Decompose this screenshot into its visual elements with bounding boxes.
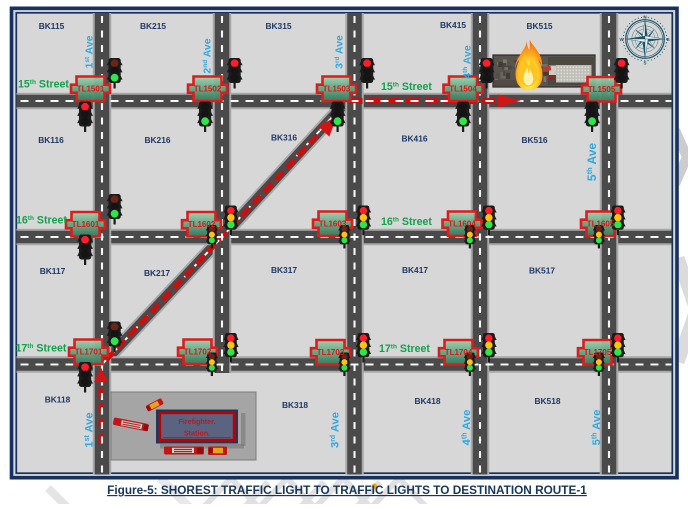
svg-text:TL1601: TL1601	[72, 220, 100, 229]
svg-text:BK117: BK117	[40, 266, 66, 276]
svg-text:TL1704: TL1704	[445, 348, 473, 357]
svg-text:4th Ave: 4th Ave	[461, 410, 473, 446]
svg-text:5th Ave: 5th Ave	[591, 410, 603, 446]
svg-text:BK116: BK116	[38, 135, 64, 145]
svg-text:BK517: BK517	[529, 266, 555, 276]
svg-text:TL1702: TL1702	[184, 347, 212, 356]
svg-text:TL1504: TL1504	[449, 84, 477, 93]
svg-text:BK318: BK318	[282, 400, 308, 410]
svg-text:BK317: BK317	[271, 265, 297, 275]
svg-text:5th Ave: 5th Ave	[585, 143, 599, 182]
svg-text:Figure-5: SHOREST TRAFFIC LIGH: Figure-5: SHOREST TRAFFIC LIGHT TO TRAFF…	[107, 483, 587, 497]
svg-text:TL1705: TL1705	[584, 348, 612, 357]
svg-text:Station.: Station.	[184, 429, 210, 438]
svg-text:15th Street: 15th Street	[18, 79, 69, 91]
svg-text:TL1703: TL1703	[317, 348, 345, 357]
svg-text:BK316: BK316	[271, 133, 297, 143]
svg-text:BK518: BK518	[534, 396, 560, 406]
svg-text:1st Ave: 1st Ave	[84, 412, 96, 447]
svg-text:17th Street: 17th Street	[379, 343, 430, 355]
svg-text:E: E	[667, 37, 670, 42]
svg-text:BK115: BK115	[39, 21, 65, 31]
svg-text:BK416: BK416	[401, 134, 427, 144]
svg-text:BK118: BK118	[45, 395, 71, 405]
svg-text:TL1605: TL1605	[587, 219, 615, 228]
svg-text:S: S	[643, 61, 646, 66]
svg-text:BK217: BK217	[144, 268, 170, 278]
svg-text:TL1503: TL1503	[323, 84, 351, 93]
svg-text:W: W	[620, 37, 625, 42]
svg-text:Firefighter.: Firefighter.	[178, 417, 215, 426]
svg-text:BK516: BK516	[521, 135, 547, 145]
svg-text:TL1502: TL1502	[194, 84, 222, 93]
svg-text:TL1602: TL1602	[188, 220, 216, 229]
svg-text:3rd Ave: 3rd Ave	[334, 35, 346, 69]
svg-text:BK216: BK216	[144, 135, 170, 145]
svg-text:TL1604: TL1604	[448, 219, 476, 228]
svg-text:TL1505: TL1505	[588, 85, 616, 94]
svg-text:2nd Ave: 2nd Ave	[202, 38, 214, 73]
svg-text:BK418: BK418	[414, 396, 440, 406]
svg-text:TL1501: TL1501	[77, 84, 105, 93]
svg-text:16th Street: 16th Street	[16, 215, 67, 227]
svg-text:3rd Ave: 3rd Ave	[330, 412, 342, 448]
svg-text:BK215: BK215	[140, 21, 166, 31]
svg-text:BK415: BK415	[440, 20, 466, 30]
svg-text:BK515: BK515	[526, 21, 552, 31]
svg-text:BK417: BK417	[402, 265, 428, 275]
svg-text:TL1603: TL1603	[319, 219, 347, 228]
svg-text:4th Ave: 4th Ave	[462, 45, 474, 79]
svg-text:15th Street: 15th Street	[381, 81, 432, 93]
svg-text:17th Street: 17th Street	[16, 343, 67, 355]
svg-text:TL1701: TL1701	[75, 347, 103, 356]
svg-text:BK315: BK315	[265, 21, 291, 31]
svg-text:1st Ave: 1st Ave	[84, 35, 96, 68]
svg-text:16th Street: 16th Street	[381, 216, 432, 228]
